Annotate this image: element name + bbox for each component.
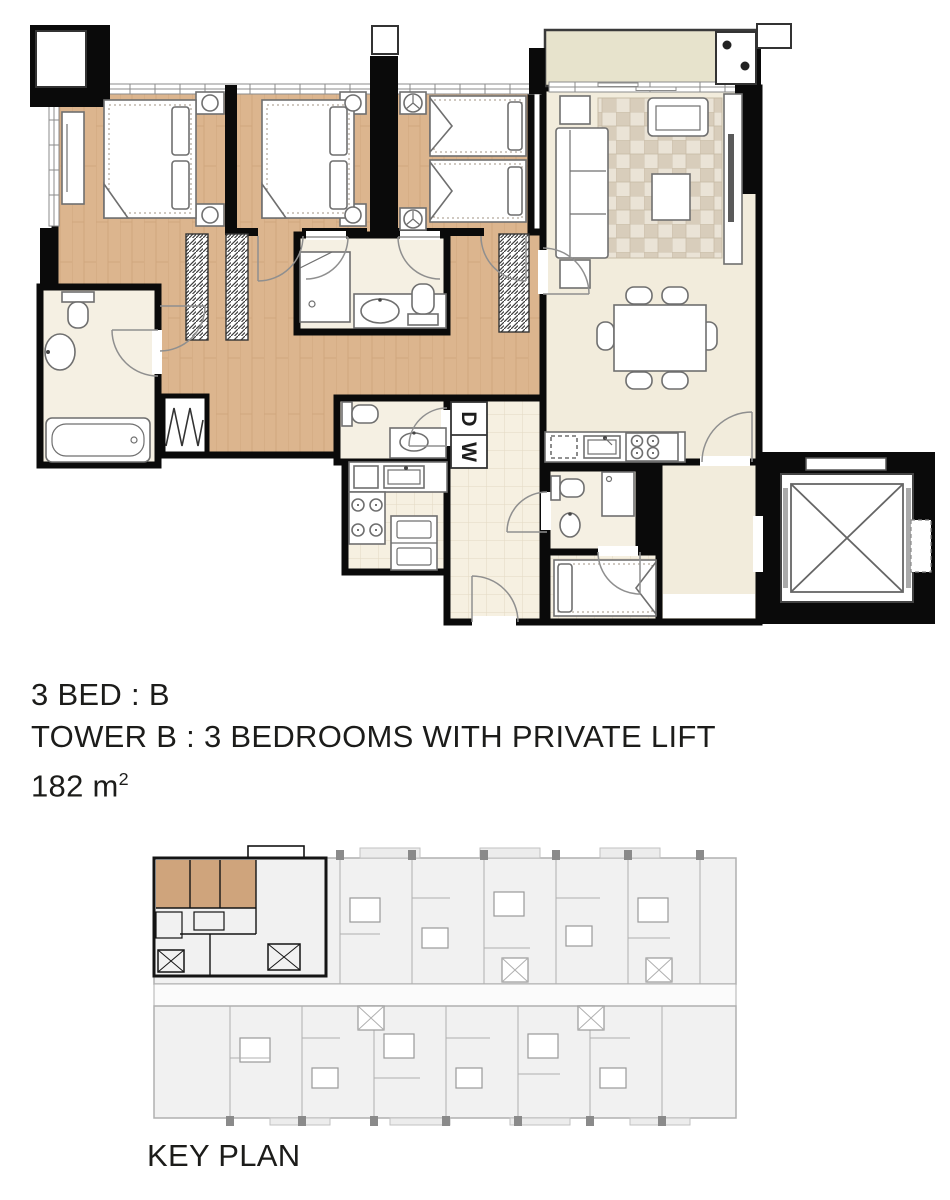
- dining-chair: [597, 322, 614, 350]
- kitchen-sink-2: [384, 466, 424, 488]
- wall-br2-br3: [370, 56, 398, 234]
- armchair: [648, 98, 708, 136]
- lamp: [202, 207, 218, 223]
- bed-queen: [262, 100, 354, 218]
- ac-ledge-top-right: [757, 24, 791, 48]
- lamp: [345, 207, 361, 223]
- unit-info: 3 BED : B TOWER B : 3 BEDROOMS WITH PRIV…: [31, 674, 716, 807]
- basin: [560, 512, 580, 537]
- tv-console: [724, 94, 742, 264]
- window-band-top: [59, 84, 541, 94]
- wardrobe-master-b: [226, 234, 248, 340]
- hob: [626, 433, 678, 461]
- fridge: [391, 516, 437, 570]
- foyer-mat: [663, 594, 755, 618]
- unit-area-value: 182 m: [31, 768, 119, 803]
- unit-area: 182 m2: [31, 758, 716, 807]
- toilet: [408, 284, 438, 325]
- balcony-ac-unit: [716, 32, 756, 84]
- unit-area-exponent: 2: [119, 769, 129, 789]
- kitchen-sink: [584, 436, 620, 458]
- dresser: [62, 112, 84, 204]
- toilet: [342, 402, 378, 426]
- basin: [45, 334, 75, 370]
- wall-living-col: [529, 48, 545, 94]
- side-table: [560, 260, 590, 288]
- dining-chair: [626, 372, 652, 389]
- washer-dryer: D W: [451, 402, 487, 468]
- toilet: [551, 476, 584, 500]
- floorplan-sheet: D W: [0, 0, 950, 1200]
- shower: [602, 472, 634, 516]
- lamp: [345, 95, 361, 111]
- unit-description: TOWER B : 3 BEDROOMS WITH PRIVATE LIFT: [31, 716, 716, 758]
- coffee-table: [652, 174, 690, 220]
- wardrobe-master-a: [186, 234, 208, 340]
- bed-twin-a: [430, 96, 526, 156]
- key-plan: [150, 838, 740, 1128]
- lamp: [202, 95, 218, 111]
- sofa: [556, 128, 608, 258]
- linen-closet: [163, 396, 207, 454]
- cabinet: [354, 466, 378, 488]
- bed-king: [104, 100, 196, 218]
- appliance-dashed: [551, 436, 577, 458]
- bed-twin-b: [430, 160, 526, 222]
- washer-label: W: [457, 442, 480, 462]
- ac-ledge-top-left: [36, 31, 86, 87]
- vanity: [390, 428, 446, 458]
- side-table: [560, 96, 590, 124]
- unit-floor-plan: D W: [0, 0, 950, 640]
- kitchen-counter-main: [545, 432, 685, 462]
- wall-shaft: [639, 462, 659, 554]
- window-band-left: [49, 100, 59, 226]
- hob-2: [349, 492, 385, 544]
- column-cap-mid: [372, 26, 398, 54]
- dining-chair: [626, 287, 652, 304]
- dining-table: [614, 305, 706, 371]
- dining-chair: [662, 287, 688, 304]
- dryer-label: D: [457, 411, 480, 426]
- shower: [300, 252, 350, 322]
- wardrobe-bedroom3: [499, 234, 529, 332]
- bedroom2-furniture: [262, 92, 366, 226]
- wall-left-strip: [40, 228, 57, 290]
- wall-br1-br2: [225, 85, 237, 235]
- dining-chair: [662, 372, 688, 389]
- key-plan-label: KEY PLAN: [147, 1138, 300, 1174]
- unit-type: 3 BED : B: [31, 674, 716, 716]
- private-lift: [753, 452, 935, 624]
- bathtub: [46, 418, 150, 462]
